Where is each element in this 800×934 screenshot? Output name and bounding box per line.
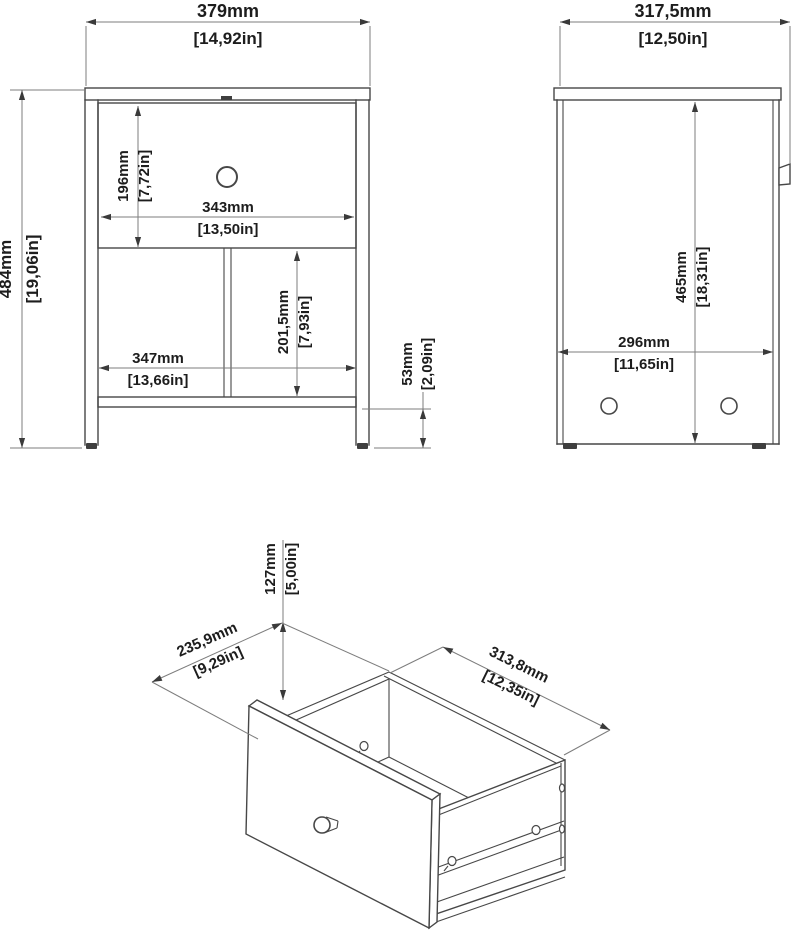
- dim-drawer-height-in: [5,00in]: [283, 543, 300, 596]
- dim-side-depth: 296mm [11,65in]: [558, 334, 773, 373]
- dim-drawer-height: 127mm [5,00in]: [262, 540, 300, 700]
- front-right-foot: [357, 443, 368, 449]
- drawer-front-face: [246, 706, 432, 928]
- side-cam-hole-right: [721, 398, 737, 414]
- drawer-right-side-panel: [433, 760, 565, 915]
- drawer-side-screw-front: [448, 857, 456, 866]
- dim-overall-height-in: [19,06in]: [23, 235, 42, 304]
- dim-drawer-front-width: 343mm [13,50in]: [101, 199, 354, 238]
- dim-base-clearance-mm: 53mm: [399, 342, 416, 385]
- dim-drawer-front-height-in: [7,72in]: [136, 150, 153, 203]
- dim-overall-width: 379mm [14,92in]: [86, 1, 370, 86]
- drawer-edge-screw-bottom: [560, 825, 565, 833]
- drawer-iso-view: 127mm [5,00in] 235,9mm [9,29in] 313,8mm …: [152, 540, 610, 928]
- front-bottom-shelf: [98, 397, 356, 407]
- dim-drawer-width: 313,8mm [12,35in]: [390, 643, 610, 755]
- dim-overall-width-mm: 379mm: [197, 1, 259, 21]
- front-knob: [217, 167, 237, 187]
- drawer-back-rim-outer: [389, 672, 565, 760]
- dim-base-clearance-in: [2,09in]: [419, 338, 436, 391]
- dim-overall-depth-mm: 317,5mm: [634, 1, 711, 21]
- dim-side-depth-in: [11,65in]: [614, 356, 674, 373]
- dim-compartment-height-in: [7,93in]: [296, 296, 313, 349]
- dim-shelf-width-in: [13,66in]: [128, 372, 189, 389]
- drawer-side-screw-back: [532, 826, 540, 835]
- dim-overall-height-mm: 484mm: [0, 240, 15, 299]
- dim-drawer-height-mm: 127mm: [262, 543, 279, 595]
- side-top-board: [554, 88, 781, 100]
- drawer-left-rim-outer: [272, 672, 389, 722]
- dim-drawer-front-width-in: [13,50in]: [198, 221, 259, 238]
- dim-compartment-height-mm: 201,5mm: [275, 290, 292, 354]
- dim-side-depth-mm: 296mm: [618, 334, 670, 351]
- side-back-foot: [563, 443, 577, 449]
- dim-side-height: 465mm [18,31in]: [673, 102, 711, 443]
- drawing-svg: 379mm [14,92in] 484mm [19,06in] 196mm [7…: [0, 0, 800, 934]
- dim-compartment-height: 201,5mm [7,93in]: [275, 251, 313, 396]
- side-knob-profile: [779, 164, 790, 185]
- dim-overall-width-in: [14,92in]: [194, 29, 263, 48]
- technical-drawing-page: 379mm [14,92in] 484mm [19,06in] 196mm [7…: [0, 0, 800, 934]
- dim-drawer-front-height: 196mm [7,72in]: [115, 106, 153, 247]
- dim-overall-depth-in: [12,50in]: [639, 29, 708, 48]
- dim-shelf-width: 347mm [13,66in]: [99, 350, 356, 389]
- dim-side-height-mm: 465mm: [673, 251, 690, 303]
- dim-shelf-width-mm: 347mm: [132, 350, 184, 367]
- dim-overall-depth: 317,5mm [12,50in]: [560, 1, 790, 163]
- dim-drawer-front-width-mm: 343mm: [202, 199, 254, 216]
- front-top-notch: [221, 96, 232, 100]
- drawer-edge-screw-top: [560, 784, 565, 792]
- dim-overall-height: 484mm [19,06in]: [0, 90, 84, 448]
- dim-base-clearance: 53mm [2,09in]: [362, 338, 436, 448]
- side-cam-hole-left: [601, 398, 617, 414]
- side-front-foot: [752, 443, 766, 449]
- front-view: 379mm [14,92in] 484mm [19,06in] 196mm [7…: [0, 1, 436, 449]
- drawer-back-screw: [360, 742, 368, 751]
- dim-side-height-in: [18,31in]: [694, 247, 711, 308]
- front-left-foot: [86, 443, 97, 449]
- dim-drawer-front-height-mm: 196mm: [115, 150, 132, 202]
- side-view: 317,5mm [12,50in] 465mm [18,31in] 296mm …: [554, 1, 790, 449]
- drawer-front-panel: [246, 700, 440, 928]
